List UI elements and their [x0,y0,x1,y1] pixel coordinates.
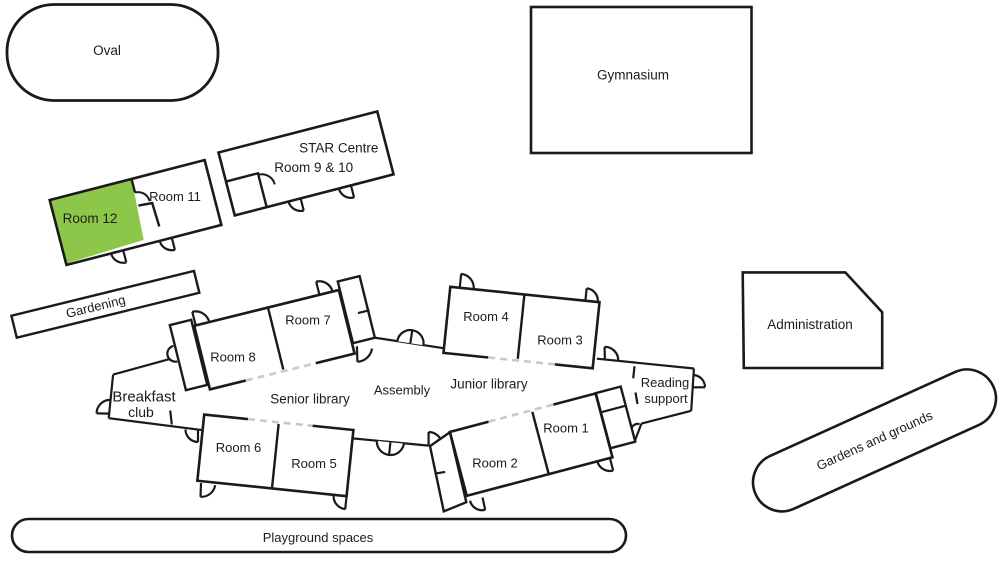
svg-text:Senior library: Senior library [270,392,350,407]
svg-text:Room 2: Room 2 [472,456,518,471]
svg-text:Room 12: Room 12 [63,211,118,226]
svg-text:Room 4: Room 4 [463,309,509,324]
svg-text:Room 6: Room 6 [216,440,262,455]
svg-text:club: club [128,404,154,420]
svg-text:STAR Centre: STAR Centre [299,141,378,156]
svg-text:Assembly: Assembly [374,383,431,398]
svg-text:Junior library: Junior library [450,377,528,392]
svg-text:Room 1: Room 1 [543,421,589,436]
svg-text:Room 7: Room 7 [285,313,331,328]
svg-text:Playground spaces: Playground spaces [263,530,374,545]
svg-text:Administration: Administration [767,317,853,332]
svg-text:Gymnasium: Gymnasium [597,68,669,83]
svg-text:Room 5: Room 5 [291,456,337,471]
svg-text:Room 3: Room 3 [537,333,583,348]
svg-text:Room 11: Room 11 [149,189,201,204]
svg-text:Oval: Oval [93,43,121,58]
svg-text:Reading: Reading [641,375,689,390]
svg-text:Breakfast: Breakfast [112,389,176,406]
svg-text:Room 8: Room 8 [210,350,256,365]
svg-text:support: support [644,391,688,406]
svg-text:Room 9 & 10: Room 9 & 10 [274,160,353,175]
